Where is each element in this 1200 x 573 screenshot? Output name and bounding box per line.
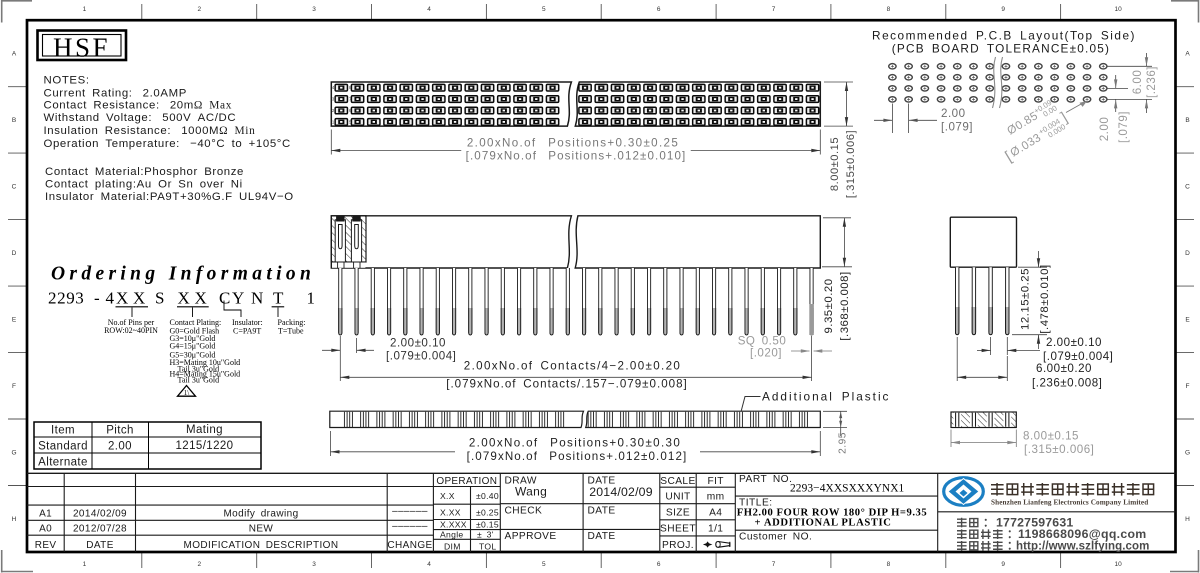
svg-text:2.00: 2.00 <box>108 441 132 453</box>
svg-text:8: 8 <box>887 561 891 568</box>
svg-text:B: B <box>12 117 16 124</box>
svg-text:F: F <box>12 383 16 390</box>
svg-text:G: G <box>1185 450 1190 457</box>
svg-text:4: 4 <box>427 6 431 13</box>
svg-text:A: A <box>12 51 17 58</box>
svg-text:X: X <box>195 289 207 308</box>
svg-text:[.236]: [.236] <box>1145 66 1158 98</box>
svg-text:8.00±0.15: 8.00±0.15 <box>829 137 841 191</box>
svg-text:10: 10 <box>1114 561 1122 568</box>
svg-text:7: 7 <box>772 6 776 13</box>
svg-text:DATE: DATE <box>86 540 114 551</box>
svg-text:Item: Item <box>51 425 75 437</box>
svg-text:N: N <box>251 289 263 308</box>
svg-text:Insulator Material:PA9T+30%G.F: Insulator Material:PA9T+30%G.F UL94V−O <box>45 191 294 203</box>
svg-text:REV: REV <box>35 540 57 551</box>
svg-text:C=PA9T: C=PA9T <box>233 327 261 336</box>
svg-text:PROJ.: PROJ. <box>662 540 694 551</box>
svg-text:T=Tube: T=Tube <box>278 327 304 336</box>
svg-text:5: 5 <box>542 6 546 13</box>
svg-text:6.00±0.20: 6.00±0.20 <box>1036 362 1092 375</box>
svg-text:2.00xNo.of Positions+0.30±0.2: 2.00xNo.of Positions+0.30±0.25 <box>467 136 679 149</box>
svg-text:H: H <box>12 516 17 523</box>
svg-text:UNIT: UNIT <box>665 491 690 502</box>
svg-text:http://www.szlfying.com: http://www.szlfying.com <box>1016 541 1149 553</box>
svg-text:Tail 3u"Gold: Tail 3u"Gold <box>170 376 220 385</box>
svg-text:Additional Plastic: Additional Plastic <box>762 390 890 404</box>
svg-text:[.079]: [.079] <box>941 121 973 134</box>
svg-text:X: X <box>178 289 190 308</box>
svg-text:G4=15μ"Gold: G4=15μ"Gold <box>170 342 216 351</box>
svg-text:3: 3 <box>312 6 316 13</box>
svg-text:C: C <box>12 184 17 191</box>
svg-text:2.00: 2.00 <box>1098 117 1111 142</box>
svg-text:±0.25: ±0.25 <box>476 508 499 518</box>
svg-text:[.368±0.008]: [.368±0.008] <box>839 271 851 340</box>
svg-text:2: 2 <box>197 6 201 13</box>
svg-text:Recommended P.C.B Layout(Top S: Recommended P.C.B Layout(Top Side) <box>872 29 1136 43</box>
svg-text:D: D <box>1185 250 1190 257</box>
svg-text:Insulation Resistance: 1000MΩ: Insulation Resistance: 1000MΩ Min <box>44 125 256 137</box>
svg-text:T: T <box>273 289 284 308</box>
svg-text:DATE: DATE <box>588 531 616 542</box>
svg-text:A1: A1 <box>39 508 52 519</box>
svg-text:10: 10 <box>1114 6 1122 13</box>
svg-text:Mating: Mating <box>186 424 223 436</box>
svg-text:S: S <box>155 289 164 308</box>
svg-text:2.95: 2.95 <box>838 432 849 454</box>
svg-text:NOTES:: NOTES: <box>44 75 90 87</box>
svg-text:1: 1 <box>307 289 316 308</box>
svg-text:A4: A4 <box>709 508 722 519</box>
svg-text:±0.15: ±0.15 <box>476 520 499 530</box>
svg-text:[.079xNo.of Positions+.012±0.: [.079xNo.of Positions+.012±0.012] <box>467 450 688 463</box>
svg-text:+ ADDITIONAL PLASTIC: + ADDITIONAL PLASTIC <box>755 518 892 529</box>
svg-text:8.00±0.15: 8.00±0.15 <box>1023 430 1079 443</box>
svg-text:[.079]: [.079] <box>1117 111 1130 143</box>
svg-text:––––––: –––––– <box>392 506 428 517</box>
svg-text:SHEET: SHEET <box>660 524 696 535</box>
svg-text:PART NO.: PART NO. <box>739 474 792 485</box>
svg-text:A: A <box>1185 51 1190 58</box>
svg-text:[.315±0.006]: [.315±0.006] <box>1024 443 1094 456</box>
svg-text:Y: Y <box>232 289 244 308</box>
svg-text:[.079±0.004]: [.079±0.004] <box>386 350 456 363</box>
svg-text:2.00±0.10: 2.00±0.10 <box>390 337 446 350</box>
svg-text:1: 1 <box>83 6 87 13</box>
svg-text:[.020]: [.020] <box>750 347 782 360</box>
svg-text:[.315±0.006]: [.315±0.006] <box>845 130 857 198</box>
svg-text:1\: 1\ <box>184 389 190 397</box>
svg-text:2.00xNo.of Positions+0.30±0.3: 2.00xNo.of Positions+0.30±0.30 <box>469 436 681 449</box>
svg-text:DIM: DIM <box>444 542 461 552</box>
svg-text:X.XXX: X.XXX <box>440 520 467 530</box>
svg-text:––––––: –––––– <box>392 521 428 532</box>
svg-text:± 3': ± 3' <box>477 530 494 540</box>
svg-text:B: B <box>1185 117 1189 124</box>
svg-text:C: C <box>1185 184 1190 191</box>
svg-text:X: X <box>116 289 128 308</box>
svg-text:Modify drawing: Modify drawing <box>223 508 298 519</box>
svg-text:2.00: 2.00 <box>941 107 966 120</box>
svg-text:G: G <box>11 450 16 457</box>
svg-text:DATE: DATE <box>588 506 616 517</box>
svg-text:H: H <box>1185 516 1190 523</box>
svg-text:X.XX: X.XX <box>440 508 461 518</box>
svg-text:：: ： <box>1007 529 1019 541</box>
svg-text:2012/07/28: 2012/07/28 <box>73 523 127 534</box>
svg-text:APPROVE: APPROVE <box>505 531 557 542</box>
svg-text:1215/1220: 1215/1220 <box>176 440 234 452</box>
svg-text:4: 4 <box>427 561 431 568</box>
svg-text:2: 2 <box>197 561 201 568</box>
svg-text:NEW: NEW <box>249 523 274 534</box>
svg-text:X: X <box>133 289 145 308</box>
svg-text:OPERATION: OPERATION <box>436 476 497 487</box>
svg-text:X.X: X.X <box>440 491 455 501</box>
svg-text:MODIFICATION DESCRIPTION: MODIFICATION DESCRIPTION <box>184 540 339 551</box>
svg-text:1198668096@qq.com: 1198668096@qq.com <box>1018 527 1147 541</box>
svg-text:HSF: HSF <box>53 33 110 63</box>
svg-text:4: 4 <box>106 289 115 308</box>
svg-text:6: 6 <box>657 6 661 13</box>
svg-text:Contact Resistance: 20mΩ Max: Contact Resistance: 20mΩ Max <box>44 100 233 112</box>
svg-text:F: F <box>1186 383 1190 390</box>
svg-text:12.15±0.25: 12.15±0.25 <box>1020 268 1032 330</box>
svg-text:Standard: Standard <box>38 441 88 453</box>
svg-text:2.00xNo.of Contacts/4−2.00±0.2: 2.00xNo.of Contacts/4−2.00±0.20 <box>464 360 681 373</box>
svg-text:Withstand Voltage: 500V AC/DC: Withstand Voltage: 500V AC/DC <box>44 112 237 124</box>
svg-text:9: 9 <box>1001 561 1005 568</box>
svg-text:(PCB BOARD TOLERANCE±0.05): (PCB BOARD TOLERANCE±0.05) <box>892 42 1110 56</box>
svg-text:：: ： <box>983 517 995 529</box>
svg-text:2.00±0.10: 2.00±0.10 <box>1046 336 1102 349</box>
svg-text:9: 9 <box>1001 6 1005 13</box>
svg-text:Angle: Angle <box>440 530 463 540</box>
svg-text:2014/02/09: 2014/02/09 <box>73 508 127 519</box>
svg-text:Current Rating: 2.0AMP: Current Rating: 2.0AMP <box>44 87 187 99</box>
svg-text:SIZE: SIZE <box>666 508 690 519</box>
svg-text:Customer NO.: Customer NO. <box>739 532 812 543</box>
svg-text:mm: mm <box>707 491 725 502</box>
svg-text:D: D <box>12 250 17 257</box>
svg-text:2014/02/09: 2014/02/09 <box>589 485 653 499</box>
svg-text:3: 3 <box>312 561 316 568</box>
svg-text:-: - <box>94 289 100 308</box>
svg-text:1/1: 1/1 <box>708 524 723 535</box>
svg-text:8: 8 <box>887 6 891 13</box>
svg-text:2293−4XXSXXXYNX1: 2293−4XXSXXXYNX1 <box>790 483 905 495</box>
svg-text:Shenzhen Lianfeng Electronics: Shenzhen Lianfeng Electronics Company Li… <box>991 499 1148 507</box>
svg-text:CHANGE: CHANGE <box>387 540 432 551</box>
svg-text:[.079xNo.of Contacts/.157−.079: [.079xNo.of Contacts/.157−.079±0.008] <box>446 378 688 391</box>
svg-text:[.478±0.010]: [.478±0.010] <box>1039 264 1051 333</box>
svg-text:Operation Temperature: −40°C: Operation Temperature: −40°C to +105°C <box>44 138 291 150</box>
svg-text:5: 5 <box>542 561 546 568</box>
svg-text:SCALE: SCALE <box>660 476 695 487</box>
svg-text:ROW:02~40PIN: ROW:02~40PIN <box>104 326 158 335</box>
svg-text:Contact Material:Phosphor Bron: Contact Material:Phosphor Bronze <box>45 166 244 178</box>
svg-text:CHECK: CHECK <box>505 506 543 517</box>
svg-text:E: E <box>1185 317 1190 324</box>
svg-text:FIT: FIT <box>707 476 723 487</box>
svg-text:Contact plating:Au Or Sn over: Contact plating:Au Or Sn over Ni <box>45 179 243 191</box>
svg-text:6.00: 6.00 <box>1131 70 1144 95</box>
svg-text:1: 1 <box>83 561 87 568</box>
svg-text:9.35±0.20: 9.35±0.20 <box>823 278 835 333</box>
svg-text:Ordering Information: Ordering Information <box>51 264 315 285</box>
svg-text:[.236±0.008]: [.236±0.008] <box>1032 377 1102 390</box>
svg-text:Pitch: Pitch <box>106 425 134 437</box>
svg-text:7: 7 <box>772 561 776 568</box>
svg-text:TOL: TOL <box>479 542 496 552</box>
svg-text:E: E <box>12 317 17 324</box>
svg-text:6: 6 <box>657 561 661 568</box>
svg-text:C: C <box>219 289 230 308</box>
svg-text:Wang: Wang <box>515 485 547 499</box>
svg-text:A0: A0 <box>39 523 52 534</box>
svg-text:±0.40: ±0.40 <box>476 491 499 501</box>
svg-text:[.079xNo.of Positions+.012±0.: [.079xNo.of Positions+.012±0.010] <box>466 149 687 162</box>
svg-text:Alternate: Alternate <box>38 457 88 469</box>
svg-text:2293: 2293 <box>48 289 84 308</box>
